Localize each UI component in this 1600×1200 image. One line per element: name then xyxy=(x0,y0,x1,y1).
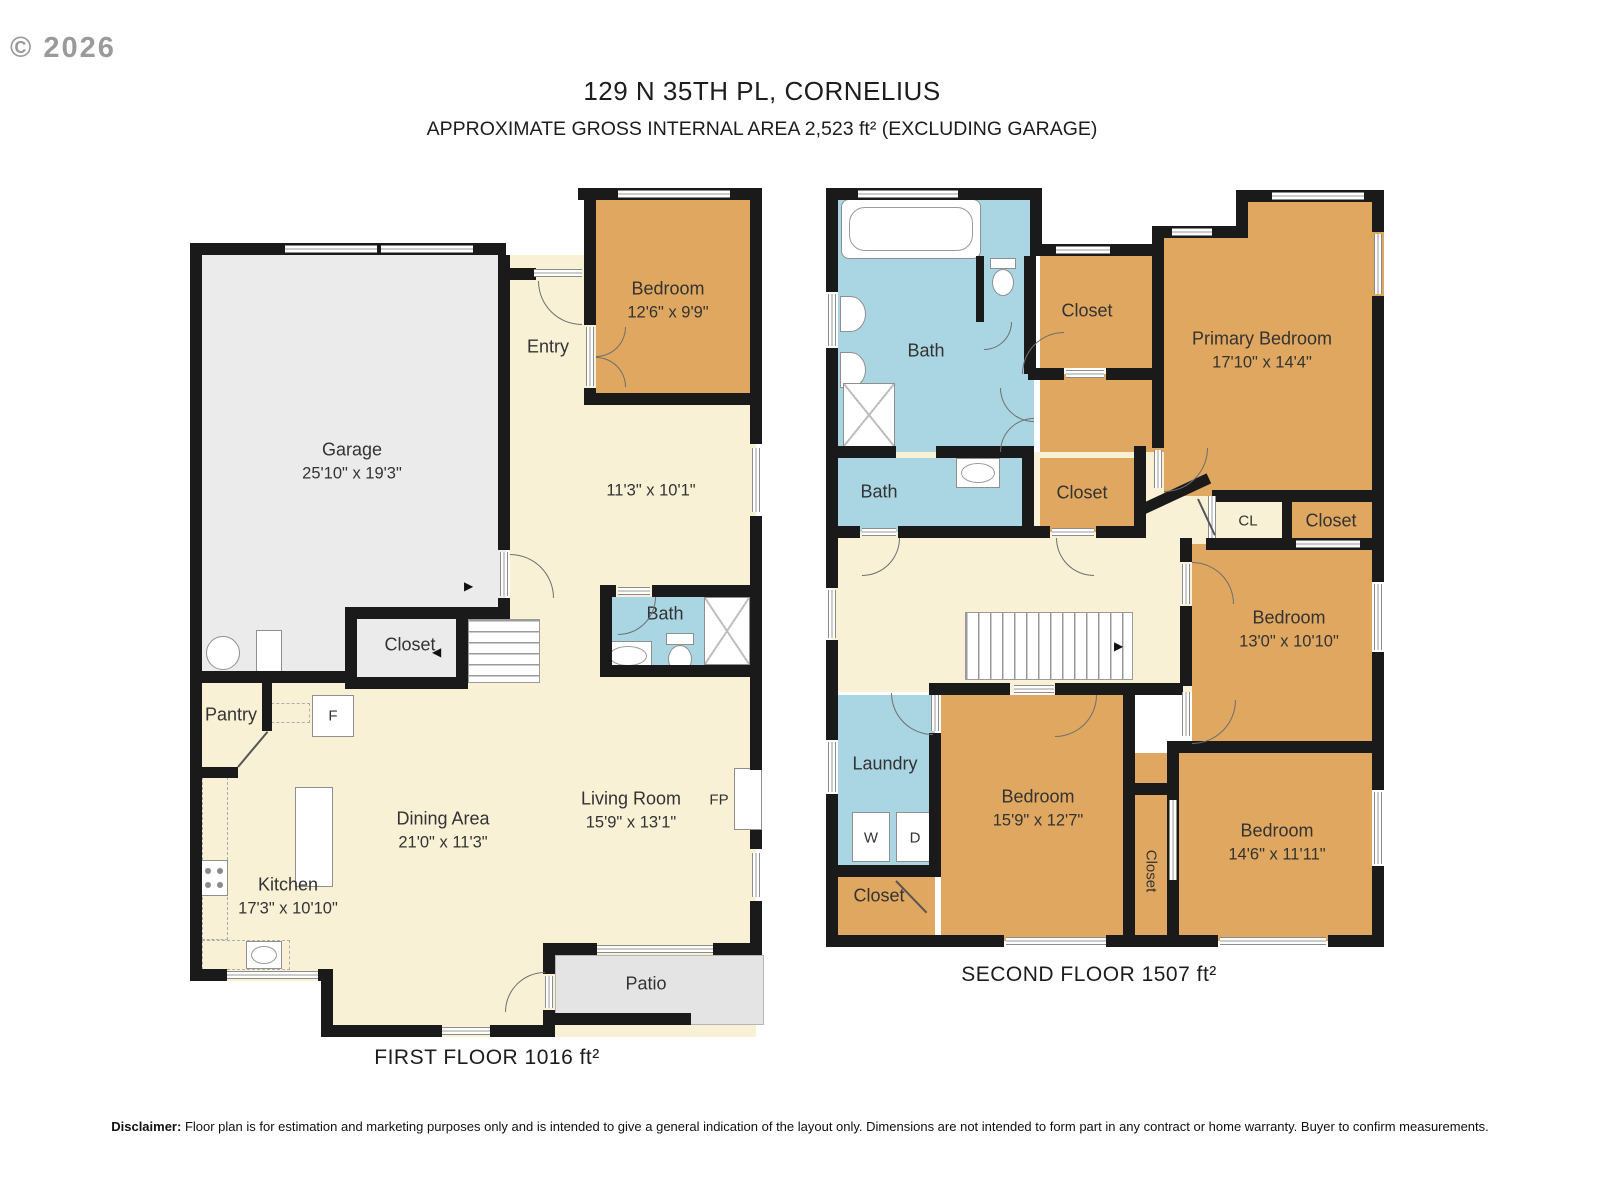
wall-segment xyxy=(321,1025,442,1037)
wall-segment xyxy=(1372,652,1384,790)
exterior-cutout xyxy=(188,981,323,1043)
window xyxy=(1052,528,1094,536)
window xyxy=(752,448,760,512)
toilet-tank-f1 xyxy=(666,633,694,645)
pantry-label: Pantry xyxy=(205,705,257,726)
stair-arrow-icon: ◀ xyxy=(432,646,441,658)
room-primary-vestibule xyxy=(1040,374,1164,452)
wall-segment xyxy=(1123,795,1135,941)
closet-hall-label: Closet xyxy=(1143,850,1160,893)
page-subtitle: APPROXIMATE GROSS INTERNAL AREA 2,523 ft… xyxy=(427,118,1098,141)
stair-arrow-icon: ▶ xyxy=(1114,640,1123,652)
wall-segment xyxy=(826,865,938,877)
counter-dashed xyxy=(266,703,310,723)
washer-label: W xyxy=(864,830,878,847)
floorplan-canvas: © 2026 129 N 35TH PL, CORNELIUS APPROXIM… xyxy=(0,0,1600,1200)
wall-segment xyxy=(490,1025,555,1037)
water-heater xyxy=(206,636,240,670)
wall-segment xyxy=(750,516,762,770)
bedroom-f1-dims: 12'6" x 9'9" xyxy=(627,304,708,323)
window xyxy=(1182,692,1190,736)
fireplace-label: FP xyxy=(709,792,728,809)
wall-segment xyxy=(1372,866,1384,947)
wall-segment xyxy=(652,585,750,597)
wall-segment xyxy=(826,526,860,538)
wall-segment xyxy=(456,619,468,683)
page-title: 129 N 35TH PL, CORNELIUS xyxy=(583,76,940,107)
kitchen-label: Kitchen xyxy=(258,875,318,896)
bedroom-bottom-dims: 14'6" x 11'11" xyxy=(1228,846,1325,865)
wall-segment xyxy=(1134,446,1146,538)
wall-segment xyxy=(190,243,202,683)
living-label: Living Room xyxy=(581,789,681,810)
garage-dims: 25'10" x 19'3" xyxy=(302,465,402,484)
closet-mid-label: Closet xyxy=(1056,483,1107,504)
disclaimer-text: Disclaimer: Floor plan is for estimation… xyxy=(0,1119,1600,1134)
window xyxy=(1374,234,1382,294)
bedroom-center-dims: 15'9" x 12'7" xyxy=(993,812,1084,831)
wall-segment xyxy=(1152,368,1164,448)
window xyxy=(1374,792,1382,864)
bath2-label: Bath xyxy=(860,482,897,503)
bathtub xyxy=(841,199,981,259)
wall-segment xyxy=(976,256,984,322)
bedroom-right-label: Bedroom xyxy=(1252,608,1325,629)
window xyxy=(534,269,582,277)
bedroom-f1-label: Bedroom xyxy=(631,279,704,300)
dryer-label: D xyxy=(910,830,921,847)
window xyxy=(500,552,508,596)
window xyxy=(227,971,318,979)
primary-label: Primary Bedroom xyxy=(1192,329,1332,350)
bedroom-bottom-label: Bedroom xyxy=(1240,821,1313,842)
wall-segment xyxy=(1282,496,1292,542)
window xyxy=(618,587,650,595)
first-floor-caption: FIRST FLOOR 1016 ft² xyxy=(374,1046,600,1070)
window xyxy=(381,245,473,253)
cl-label: CL xyxy=(1238,513,1257,530)
window xyxy=(1272,192,1364,200)
wall-segment xyxy=(1212,490,1384,502)
window xyxy=(1006,937,1106,945)
window xyxy=(1374,584,1382,650)
window xyxy=(586,327,594,386)
furnace xyxy=(256,630,282,672)
flex-room-dims: 11'3" x 10'1" xyxy=(606,482,695,501)
laundry-label: Laundry xyxy=(852,754,917,775)
wall-segment xyxy=(1180,538,1192,562)
window xyxy=(545,976,553,1008)
window xyxy=(858,190,958,198)
wall-segment xyxy=(498,598,510,619)
wall-segment xyxy=(345,607,506,619)
wall-segment xyxy=(543,943,597,955)
window xyxy=(1296,540,1360,548)
wall-segment xyxy=(600,665,750,677)
room-primary xyxy=(1236,202,1384,232)
toilet-tank-f2 xyxy=(990,258,1016,269)
fridge-label: F xyxy=(328,708,337,725)
shower-f2 xyxy=(843,383,895,447)
wall-segment xyxy=(826,935,1004,947)
window xyxy=(285,245,377,253)
wall-segment xyxy=(826,446,896,458)
kitchen-island xyxy=(295,787,333,887)
bath1-label: Bath xyxy=(907,341,944,362)
living-dims: 15'9" x 13'1" xyxy=(586,814,677,833)
wall-segment xyxy=(826,188,838,292)
window xyxy=(752,853,760,897)
toilet-bowl-f2 xyxy=(992,269,1014,296)
wall-segment xyxy=(750,200,762,444)
wall-segment xyxy=(510,268,536,280)
wall-segment xyxy=(826,348,838,588)
wall-segment xyxy=(1055,683,1183,695)
wall-segment xyxy=(262,683,272,731)
wall-segment xyxy=(1180,606,1192,686)
wall-segment xyxy=(600,585,612,677)
window xyxy=(1220,937,1326,945)
wall-segment xyxy=(190,969,227,981)
window xyxy=(1154,450,1162,488)
wall-segment xyxy=(826,640,838,740)
wall-segment xyxy=(1152,256,1164,368)
wall-segment xyxy=(584,200,596,325)
closet-top-label: Closet xyxy=(1061,301,1112,322)
disclaimer-body: Floor plan is for estimation and marketi… xyxy=(181,1119,1488,1134)
stair-arrow-icon: ▶ xyxy=(464,580,473,592)
wall-segment xyxy=(713,943,762,955)
window xyxy=(1172,228,1212,236)
second-floor-caption: SECOND FLOOR 1507 ft² xyxy=(961,963,1217,987)
wall-segment xyxy=(1372,190,1384,232)
window xyxy=(828,590,836,638)
window xyxy=(1182,564,1190,604)
patio-label: Patio xyxy=(625,974,666,995)
bedroom-center-label: Bedroom xyxy=(1001,787,1074,808)
closet-f1-label: Closet xyxy=(384,635,435,656)
window xyxy=(828,294,836,346)
wall-segment xyxy=(750,830,762,849)
window xyxy=(1014,685,1054,693)
disclaimer-label: Disclaimer: xyxy=(111,1119,181,1134)
kitchen-dims: 17'3" x 10'10" xyxy=(238,900,338,919)
closet-right-label: Closet xyxy=(1305,511,1356,532)
wall-segment xyxy=(543,1013,691,1025)
window xyxy=(597,945,713,953)
window xyxy=(1169,800,1177,880)
wall-segment xyxy=(498,255,510,550)
bedroom-right-dims: 13'0" x 10'10" xyxy=(1239,633,1339,652)
wall-segment xyxy=(190,683,202,981)
closet-bl-label: Closet xyxy=(853,886,904,907)
wall-segment xyxy=(584,393,762,405)
staircase-f1 xyxy=(468,619,540,683)
window xyxy=(828,742,836,792)
window xyxy=(1066,370,1104,378)
wall-segment xyxy=(929,683,1010,695)
copyright-watermark: © 2026 xyxy=(10,32,116,65)
counter-dashed xyxy=(202,772,228,940)
wall-segment xyxy=(929,733,941,877)
wall-segment xyxy=(1123,683,1135,795)
bath2-sink xyxy=(956,458,1000,488)
window xyxy=(618,190,730,198)
wall-segment xyxy=(1022,446,1034,538)
fireplace-box xyxy=(734,768,762,830)
dining-dims: 21'0" x 11'3" xyxy=(398,834,487,853)
staircase-f2 xyxy=(965,612,1133,680)
window xyxy=(1056,246,1110,254)
wall-segment xyxy=(898,526,1050,538)
dining-label: Dining Area xyxy=(396,809,489,830)
garage-label: Garage xyxy=(322,440,382,461)
wall-segment xyxy=(190,671,357,683)
primary-dims: 17'10" x 14'4" xyxy=(1212,354,1312,373)
shower-f1 xyxy=(704,597,750,665)
stove xyxy=(198,860,228,896)
kitchen-sink xyxy=(246,941,282,969)
window xyxy=(862,528,896,536)
wall-segment xyxy=(345,677,468,689)
window xyxy=(442,1027,490,1035)
entry-label: Entry xyxy=(527,337,569,358)
